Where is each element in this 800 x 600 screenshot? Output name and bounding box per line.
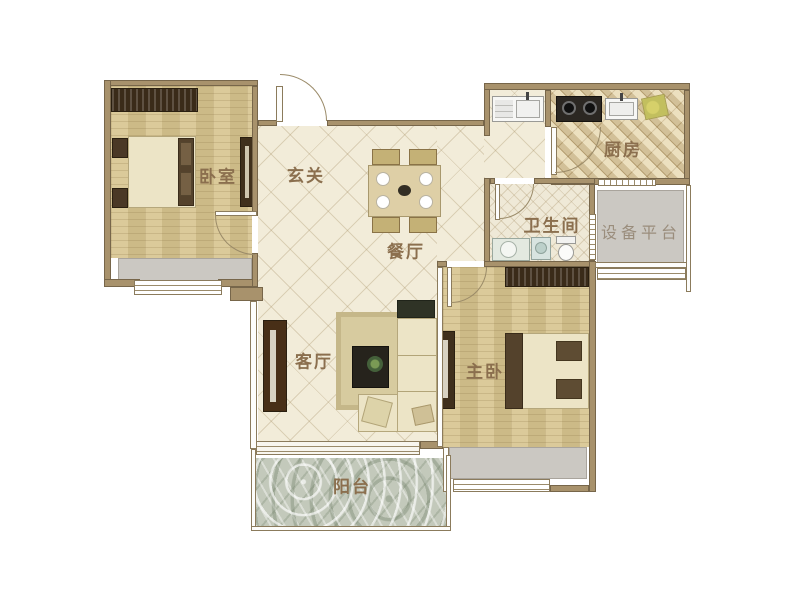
kitchen-sink-basin bbox=[609, 102, 634, 116]
bedroom-pillow-1 bbox=[180, 142, 192, 166]
wall-alcove-left bbox=[484, 83, 490, 136]
label-balcony: 阳台 bbox=[333, 473, 371, 498]
bedroom-nightstand-bottom bbox=[112, 188, 128, 208]
master-bay-window bbox=[453, 479, 550, 492]
wall-master-bay-bottom-right bbox=[550, 485, 589, 492]
wall-entry-top-right bbox=[327, 120, 484, 126]
label-bathroom: 卫生间 bbox=[524, 212, 581, 237]
bedroom-window bbox=[134, 280, 222, 295]
bathroom-basin bbox=[500, 241, 517, 258]
wall-bedroom-right-upper bbox=[252, 86, 258, 216]
bedroom-tv-screen bbox=[245, 146, 249, 198]
wall-bathroom-left bbox=[484, 178, 490, 267]
platform-window bbox=[597, 268, 686, 280]
master-bed-footboard bbox=[505, 333, 523, 409]
balcony-sliding-door bbox=[256, 441, 420, 455]
wall-kitchen-top bbox=[484, 83, 690, 90]
wall-balcony-right bbox=[446, 455, 451, 531]
wall-balcony-bottom bbox=[251, 526, 451, 531]
master-bay-window-ledge bbox=[449, 447, 587, 479]
entry-cabinet-shelves bbox=[495, 100, 513, 118]
wall-living-master-divider bbox=[437, 267, 443, 447]
label-dining: 餐厅 bbox=[387, 238, 425, 263]
label-master-bedroom: 主卧 bbox=[466, 358, 504, 383]
toilet-bowl bbox=[558, 244, 574, 261]
master-pillow-2 bbox=[556, 379, 582, 399]
wall-master-right bbox=[589, 261, 596, 492]
wall-kitchen-left bbox=[545, 90, 551, 127]
floor-plan: 卧室 玄关 餐厅 厨房 卫生间 设备平台 客厅 主卧 阳台 bbox=[0, 0, 800, 600]
stove-burner-left bbox=[562, 101, 576, 115]
dining-chair-4 bbox=[409, 217, 437, 233]
bedroom-nightstand-top bbox=[112, 138, 128, 158]
bedroom-wardrobe bbox=[111, 88, 198, 112]
kitchen-platform-window bbox=[598, 179, 656, 186]
label-kitchen: 厨房 bbox=[604, 136, 642, 161]
living-tv-screen bbox=[270, 330, 276, 402]
dining-plate-2 bbox=[419, 172, 433, 186]
wall-bedroom-right-lower bbox=[252, 253, 258, 287]
entry-sink-basin bbox=[516, 100, 540, 118]
stove-burner-right bbox=[583, 101, 597, 115]
dining-chair-1 bbox=[372, 149, 400, 165]
wall-bedroom-left bbox=[104, 80, 111, 287]
bedroom-pillow-2 bbox=[180, 172, 192, 196]
dining-plate-3 bbox=[376, 195, 390, 209]
wall-kitchen-right bbox=[684, 90, 690, 185]
label-entry: 玄关 bbox=[287, 162, 325, 187]
label-bedroom: 卧室 bbox=[199, 163, 237, 188]
hallway-floor bbox=[437, 126, 484, 261]
washing-machine-door bbox=[535, 242, 547, 254]
label-living: 客厅 bbox=[295, 348, 333, 373]
master-wardrobe bbox=[505, 267, 589, 287]
dining-chair-3 bbox=[372, 217, 400, 233]
label-equipment-platform: 设备平台 bbox=[601, 219, 681, 243]
master-tv-screen bbox=[443, 340, 448, 398]
wall-outer-right-thin bbox=[686, 185, 691, 292]
dining-plate-4 bbox=[419, 195, 433, 209]
dining-chair-2 bbox=[409, 149, 437, 165]
wall-bedroom-living-connector bbox=[230, 287, 263, 301]
entry-door-swing bbox=[280, 74, 327, 121]
dining-plate-1 bbox=[376, 172, 390, 186]
bathroom-window bbox=[589, 214, 596, 260]
entry-sink-faucet bbox=[526, 92, 529, 100]
wall-balcony-left bbox=[251, 449, 256, 531]
wall-living-left-thin bbox=[250, 301, 257, 449]
coffee-table-plant bbox=[367, 356, 383, 372]
master-pillow-1 bbox=[556, 341, 582, 361]
dining-centerpiece bbox=[398, 185, 411, 196]
living-console-table bbox=[397, 300, 435, 318]
wall-bedroom-top bbox=[104, 80, 258, 86]
wall-bathroom-bottom bbox=[484, 261, 595, 267]
wall-entry-top-left bbox=[258, 120, 277, 126]
wall-bathroom-top-right bbox=[534, 178, 595, 184]
kitchen-faucet bbox=[620, 93, 623, 101]
toilet-tank bbox=[556, 236, 576, 244]
